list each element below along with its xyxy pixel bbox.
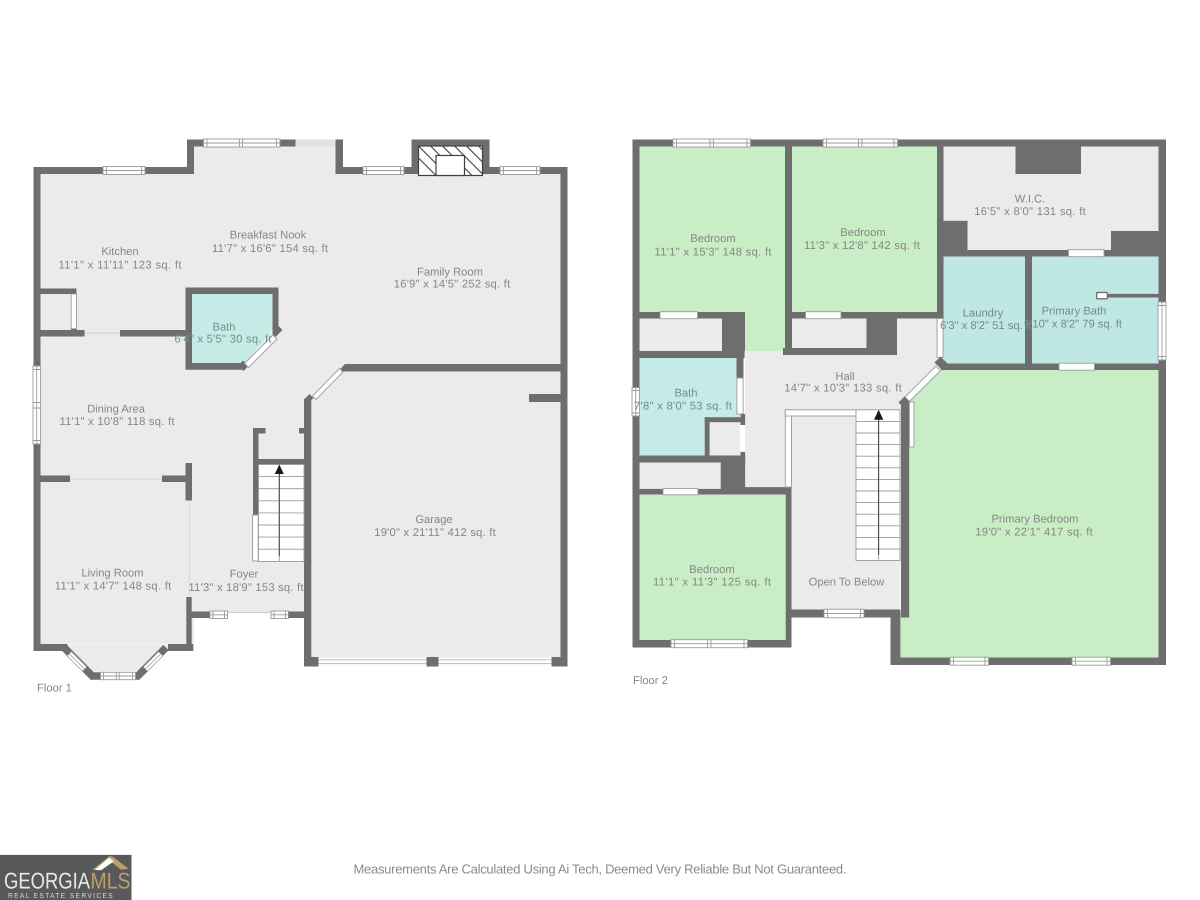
svg-text:16'5" x 8'0" 131 sq. ft: 16'5" x 8'0" 131 sq. ft xyxy=(974,206,1086,218)
svg-text:Floor 2: Floor 2 xyxy=(633,675,668,687)
svg-text:Bedroom: Bedroom xyxy=(840,227,885,239)
svg-text:Floor 1: Floor 1 xyxy=(37,683,72,695)
svg-text:Bath: Bath xyxy=(674,388,697,400)
svg-text:16'9" x 14'5" 252 sq. ft: 16'9" x 14'5" 252 sq. ft xyxy=(394,279,511,291)
svg-text:Measurements Are Calculated Us: Measurements Are Calculated Using Ai Tec… xyxy=(354,862,847,877)
svg-text:11'1" x 11'11" 123 sq. ft: 11'1" x 11'11" 123 sq. ft xyxy=(59,260,183,272)
svg-text:14'7" x 10'3" 133 sq. ft: 14'7" x 10'3" 133 sq. ft xyxy=(784,383,902,395)
svg-text:11'1" x 14'7" 148 sq. ft: 11'1" x 14'7" 148 sq. ft xyxy=(55,581,172,593)
svg-text:7'8" x 8'0" 53 sq. ft: 7'8" x 8'0" 53 sq. ft xyxy=(634,401,733,413)
svg-text:Bath: Bath xyxy=(212,322,235,334)
svg-text:REAL ESTATE SERVICES: REAL ESTATE SERVICES xyxy=(8,891,114,900)
svg-text:19'0" x 21'11" 412 sq. ft: 19'0" x 21'11" 412 sq. ft xyxy=(374,527,496,539)
svg-text:Living Room: Living Room xyxy=(81,568,143,580)
svg-text:11'3" x 18'9" 153 sq. ft: 11'3" x 18'9" 153 sq. ft xyxy=(189,582,305,594)
svg-text:11'1" x 11'3" 125 sq. ft: 11'1" x 11'3" 125 sq. ft xyxy=(653,577,772,589)
svg-text:GEORGIA: GEORGIA xyxy=(4,868,91,894)
svg-text:11'7" x 16'6" 154 sq. ft: 11'7" x 16'6" 154 sq. ft xyxy=(212,243,329,255)
svg-text:11'1" x 10'8" 118 sq. ft: 11'1" x 10'8" 118 sq. ft xyxy=(60,416,176,428)
svg-text:Bedroom: Bedroom xyxy=(690,233,735,245)
svg-text:Hall: Hall xyxy=(835,371,854,383)
svg-text:Kitchen: Kitchen xyxy=(101,246,138,258)
svg-text:W.I.C.: W.I.C. xyxy=(1015,194,1045,206)
svg-text:Open To Below: Open To Below xyxy=(809,577,886,589)
svg-text:9'10" x 8'2" 79 sq. ft: 9'10" x 8'2" 79 sq. ft xyxy=(1024,319,1123,331)
svg-text:Family Room: Family Room xyxy=(417,267,483,279)
svg-text:Dining Area: Dining Area xyxy=(87,404,146,416)
svg-text:Breakfast Nook: Breakfast Nook xyxy=(230,230,307,242)
svg-text:19'0" x 22'1" 417 sq. ft: 19'0" x 22'1" 417 sq. ft xyxy=(975,527,1093,539)
svg-text:6'4" x 5'5" 30 sq. ft: 6'4" x 5'5" 30 sq. ft xyxy=(175,334,273,346)
svg-text:Bedroom: Bedroom xyxy=(689,564,734,576)
svg-text:Foyer: Foyer xyxy=(230,569,259,581)
svg-text:Laundry: Laundry xyxy=(963,308,1004,320)
svg-text:Garage: Garage xyxy=(415,514,452,526)
svg-text:11'1" x 15'3" 148 sq. ft: 11'1" x 15'3" 148 sq. ft xyxy=(655,247,773,259)
svg-text:6'3" x 8'2" 51 sq. ft: 6'3" x 8'2" 51 sq. ft xyxy=(940,320,1033,332)
svg-text:11'3" x 12'8" 142 sq. ft: 11'3" x 12'8" 142 sq. ft xyxy=(804,240,921,252)
svg-text:MLS: MLS xyxy=(91,868,131,894)
svg-text:Primary Bath: Primary Bath xyxy=(1042,306,1107,318)
svg-text:Primary Bedroom: Primary Bedroom xyxy=(991,514,1078,526)
